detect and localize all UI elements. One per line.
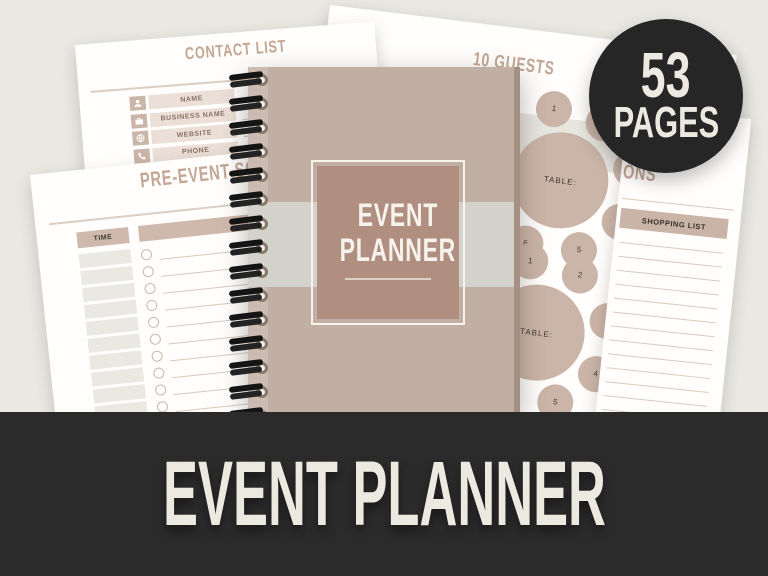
shopping-line <box>604 395 708 407</box>
time-cell <box>87 333 140 352</box>
cover-title-square: EVENTPLANNER <box>317 166 459 319</box>
person-icon <box>129 96 146 111</box>
time-cell <box>93 384 146 403</box>
shopping-line <box>612 311 716 323</box>
phone-icon <box>133 148 150 163</box>
task-checkbox <box>144 283 156 295</box>
task-checkbox <box>140 249 152 261</box>
time-cell <box>84 300 137 319</box>
task-checkbox <box>146 299 158 311</box>
event-planner-mockup: 10 GUESTS TABLE:123456TABLE:123456 CONTA… <box>0 0 768 576</box>
task-checkbox <box>142 266 154 278</box>
briefcase-icon <box>131 113 148 128</box>
shopping-line <box>618 256 722 268</box>
task-checkbox <box>148 316 160 328</box>
banner-title: EVENT PLANNER <box>0 442 768 547</box>
shopping-line <box>608 353 712 365</box>
shopping-line <box>611 325 715 337</box>
shopping-list-header: SHOPPING LIST <box>619 208 728 239</box>
time-cell <box>82 283 135 302</box>
badge-label: PAGES <box>591 102 742 144</box>
shopping-line <box>609 339 713 351</box>
page-count-badge: 53 PAGES <box>589 19 743 173</box>
shopping-line <box>606 367 710 379</box>
time-cell <box>86 317 139 336</box>
cover-title: EVENTPLANNER <box>317 198 459 268</box>
cover-title-underline <box>345 278 431 280</box>
task-checkbox <box>153 367 165 379</box>
schedule-col-time: TIME <box>76 227 129 248</box>
notebook-cover: EVENTPLANNER <box>248 67 520 412</box>
title-divider <box>622 198 733 211</box>
shopping-line <box>615 284 719 296</box>
time-cell <box>80 266 133 285</box>
globe-icon <box>132 131 149 146</box>
time-cell <box>89 350 142 369</box>
task-checkbox <box>149 333 161 345</box>
badge-count: 53 <box>630 48 701 102</box>
seat-circle: 2 <box>560 255 600 295</box>
seat-circle: 1 <box>534 89 574 129</box>
shopping-line <box>605 381 709 393</box>
task-checkbox <box>155 384 167 396</box>
time-cell <box>91 367 144 386</box>
task-checkbox <box>151 350 163 362</box>
contact-page-title: CONTACT LIST <box>106 30 367 70</box>
shopping-line <box>614 298 718 310</box>
title-banner: EVENT PLANNER <box>0 412 768 576</box>
shopping-line <box>620 242 724 254</box>
shopping-line <box>617 270 721 282</box>
time-cell <box>79 249 132 268</box>
